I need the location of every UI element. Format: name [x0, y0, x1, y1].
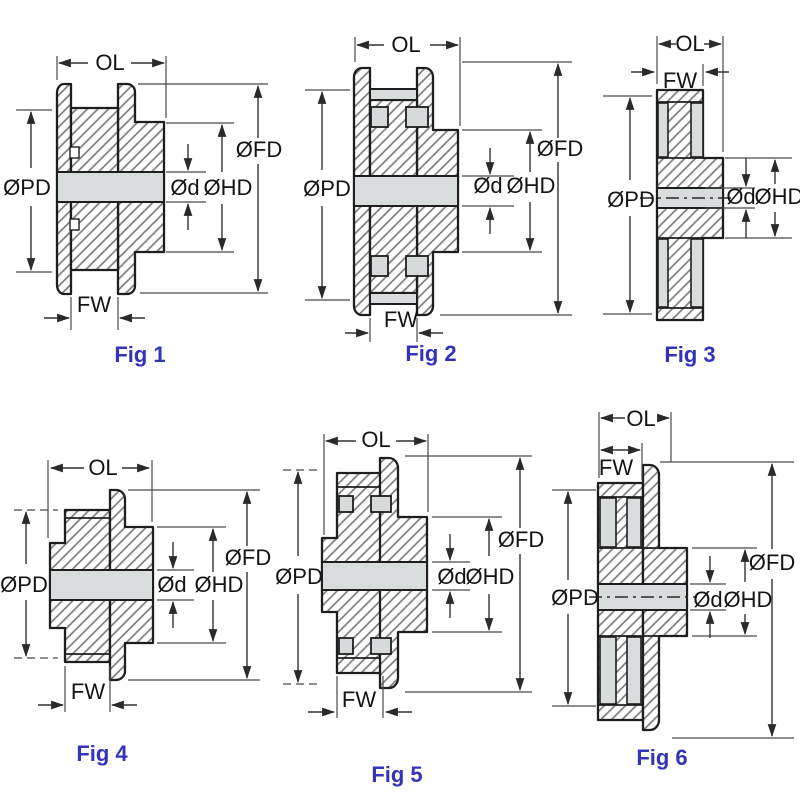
dim-label-fd: ØFD — [236, 137, 282, 162]
bore — [354, 176, 458, 206]
diagram-page: OL ØPD ØFD ØHD Ød FW Fig 1 — [0, 0, 800, 800]
figure-3: OL FW ØPD Ød ØHD Fig 3 — [603, 31, 800, 367]
pulley-figures-canvas: OL ØPD ØFD ØHD Ød FW Fig 1 — [0, 0, 800, 800]
dim-label-d: Ød — [437, 564, 466, 589]
dim-label-d: Ød — [157, 572, 186, 597]
dim-label-ol: OL — [626, 406, 655, 431]
dim-label-hd: ØHD — [204, 175, 253, 200]
dim-label-ol: OL — [361, 427, 390, 452]
figure-1-caption: Fig 1 — [114, 342, 165, 367]
dim-label-pd: ØPD — [607, 187, 655, 212]
dim-label-fw: FW — [384, 307, 418, 332]
figure-6: OL FW ØPD ØFD ØHD Ød Fig 6 — [551, 406, 795, 770]
figure-2-drawing — [354, 68, 458, 315]
dim-label-hd: ØHD — [755, 184, 800, 209]
dim-label-fd: ØFD — [537, 136, 583, 161]
tooth-slot — [600, 498, 616, 547]
figure-3-caption: Fig 3 — [664, 342, 715, 367]
tooth-block — [371, 496, 391, 512]
figure-5: OL ØPD ØFD ØHD Ød FW Fig 5 — [275, 427, 544, 787]
dim-label-fw: FW — [663, 68, 697, 93]
dim-label-pd: ØPD — [551, 585, 599, 610]
tooth-rim-band — [370, 293, 417, 304]
figure-6-drawing — [589, 465, 697, 730]
figure-2-caption: Fig 2 — [405, 341, 456, 366]
tooth-block — [339, 496, 353, 512]
dim-label-d: Ød — [473, 173, 502, 198]
dim-label-fd: ØFD — [498, 527, 544, 552]
tooth-block — [339, 638, 353, 654]
figure-5-caption: Fig 5 — [371, 762, 422, 787]
figure-4-drawing — [50, 490, 153, 680]
bore — [57, 172, 164, 202]
tooth-block — [406, 107, 428, 127]
figure-1-drawing — [57, 84, 164, 294]
tooth-block — [371, 638, 391, 654]
bore — [322, 562, 427, 590]
dim-label-ol: OL — [675, 31, 704, 56]
tooth-block — [371, 256, 388, 276]
dim-label-d: Ød — [726, 184, 755, 209]
figure-4: OL ØPD ØFD ØHD Ød FW Fig 4 — [0, 455, 271, 766]
dim-label-fw: FW — [599, 455, 633, 480]
tooth-slot — [627, 498, 641, 547]
dim-label-fd: ØFD — [749, 550, 795, 575]
tooth-slot — [691, 103, 703, 157]
tooth-slot — [658, 239, 668, 307]
tooth-slot — [691, 239, 703, 307]
dim-label-hd: ØHD — [507, 173, 556, 198]
dim-label-fw: FW — [342, 687, 376, 712]
dim-label-d: Ød — [170, 175, 199, 200]
tooth-slot — [600, 637, 616, 704]
dim-label-fw: FW — [71, 679, 105, 704]
dim-label-fd: ØFD — [225, 545, 271, 570]
figure-4-caption: Fig 4 — [76, 741, 128, 766]
dim-label-ol: OL — [95, 50, 124, 75]
flange-notch — [70, 219, 79, 230]
figure-2: OL ØPD ØFD ØHD Ød FW Fig 2 — [303, 32, 583, 366]
dim-label-pd: ØPD — [275, 564, 323, 589]
dim-label-fw: FW — [77, 292, 111, 317]
bore — [50, 570, 153, 600]
dim-label-hd: ØHD — [724, 587, 773, 612]
dim-label-ol: OL — [391, 32, 420, 57]
figure-5-drawing — [322, 458, 427, 688]
flange-notch — [70, 147, 79, 158]
tooth-rim-band — [370, 89, 417, 100]
dim-label-d: Ød — [693, 587, 722, 612]
figure-1: OL ØPD ØFD ØHD Ød FW Fig 1 — [3, 50, 282, 367]
dim-label-pd: ØPD — [3, 175, 51, 200]
tooth-block — [406, 256, 428, 276]
figure-6-caption: Fig 6 — [636, 745, 687, 770]
dim-label-pd: ØPD — [303, 176, 351, 201]
tooth-slot — [658, 103, 668, 157]
dim-label-hd: ØHD — [466, 564, 515, 589]
dim-label-hd: ØHD — [195, 572, 244, 597]
dim-label-ol: OL — [88, 455, 117, 480]
tooth-slot — [627, 637, 641, 704]
tooth-block — [371, 107, 388, 127]
dim-label-pd: ØPD — [0, 572, 48, 597]
